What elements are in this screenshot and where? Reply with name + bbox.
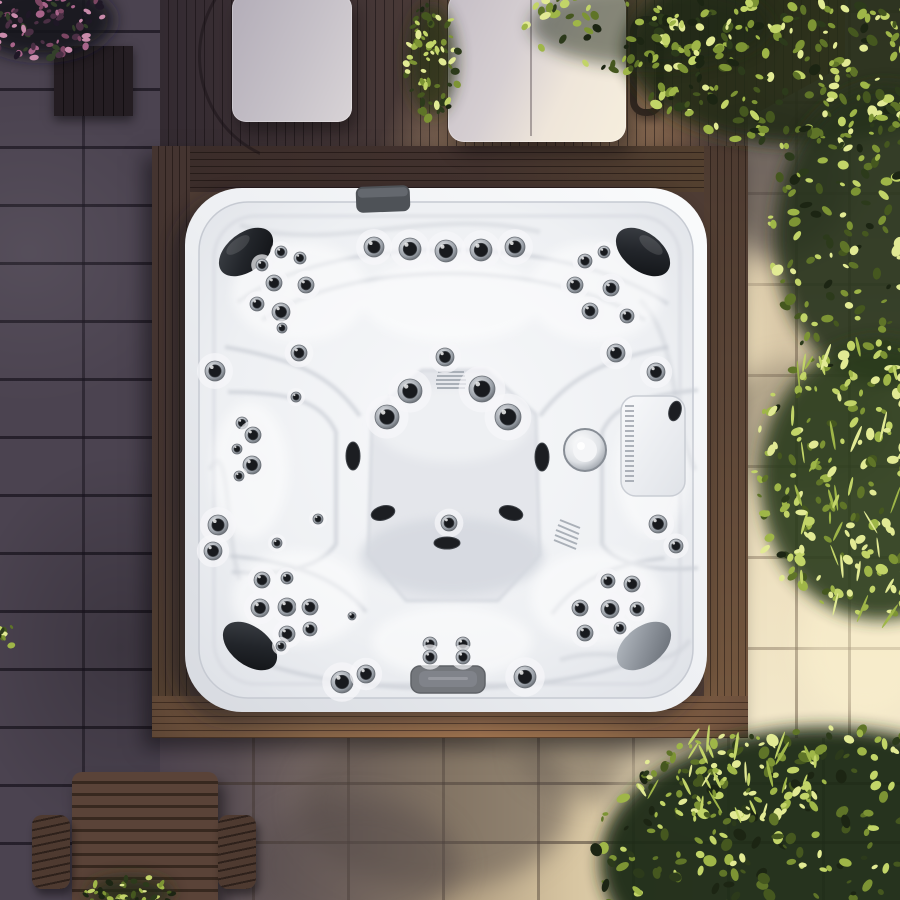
wood-slat-chair	[72, 772, 218, 900]
cushion-divider	[530, 0, 532, 136]
sun-patch	[615, 730, 775, 840]
screenshot-root	[0, 0, 900, 900]
platform-plank-left	[152, 146, 190, 738]
chair-armrest-right	[218, 815, 256, 889]
platform-plank-right	[704, 146, 748, 738]
dark-wood-side-table	[54, 46, 133, 116]
wood-towel-rail	[630, 16, 663, 116]
white-double-lounger	[448, 0, 626, 142]
patio-pavers-shaded	[0, 0, 160, 900]
tub-deck-platform	[152, 146, 748, 738]
chair-armrest-left	[32, 815, 70, 889]
platform-plank-bottom	[152, 696, 748, 738]
white-ottoman	[232, 0, 352, 122]
platform-plank-top	[152, 146, 748, 192]
